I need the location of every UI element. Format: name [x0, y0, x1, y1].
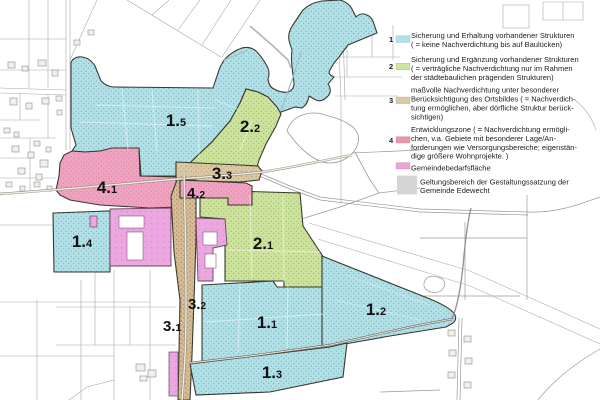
svg-text:maßvolle Nachverdichtung unter: maßvolle Nachverdichtung unter besondere… [411, 86, 559, 95]
svg-text:der städtebaulichen prägenden: der städtebaulichen prägenden Strukturen… [411, 73, 554, 82]
svg-text:Gemeindebedarfsfläche: Gemeindebedarfsfläche [411, 164, 491, 173]
svg-text:chen, v.a. Gebiete mit besonde: chen, v.a. Gebiete mit besonderer Lage/A… [411, 134, 556, 143]
svg-text:Gemeinde Edewecht: Gemeinde Edewecht [420, 186, 491, 195]
svg-text:sichtigen): sichtigen) [411, 113, 444, 122]
svg-text:( = keine Nachverdichtung bis: ( = keine Nachverdichtung bis auf Baulüc… [411, 40, 563, 49]
svg-text:Sicherung und Erhaltung vorhan: Sicherung und Erhaltung vorhandener Stru… [411, 31, 574, 40]
svg-text:3: 3 [389, 96, 393, 105]
svg-text:Berücksichtigung des Ortsbilde: Berücksichtigung des Ortsbildes ( = Nach… [411, 95, 576, 104]
svg-text:Entwicklungszone ( = Nachverdi: Entwicklungszone ( = Nachverdichtung erm… [411, 125, 570, 134]
svg-text:1: 1 [389, 35, 393, 44]
svg-text:2: 2 [389, 62, 393, 71]
svg-text:tung ermöglichen, aber dörflic: tung ermöglichen, aber dörfliche Struktu… [411, 104, 574, 113]
svg-text:( = verträgliche Nachverdichtu: ( = verträgliche Nachverdichtung nur im … [411, 64, 573, 73]
svg-text:Sicherung und Ergänzung vorhan: Sicherung und Ergänzung vorhandener Stru… [411, 55, 579, 64]
svg-text:dige größere Wohnprojekte. ): dige größere Wohnprojekte. ) [411, 152, 509, 161]
